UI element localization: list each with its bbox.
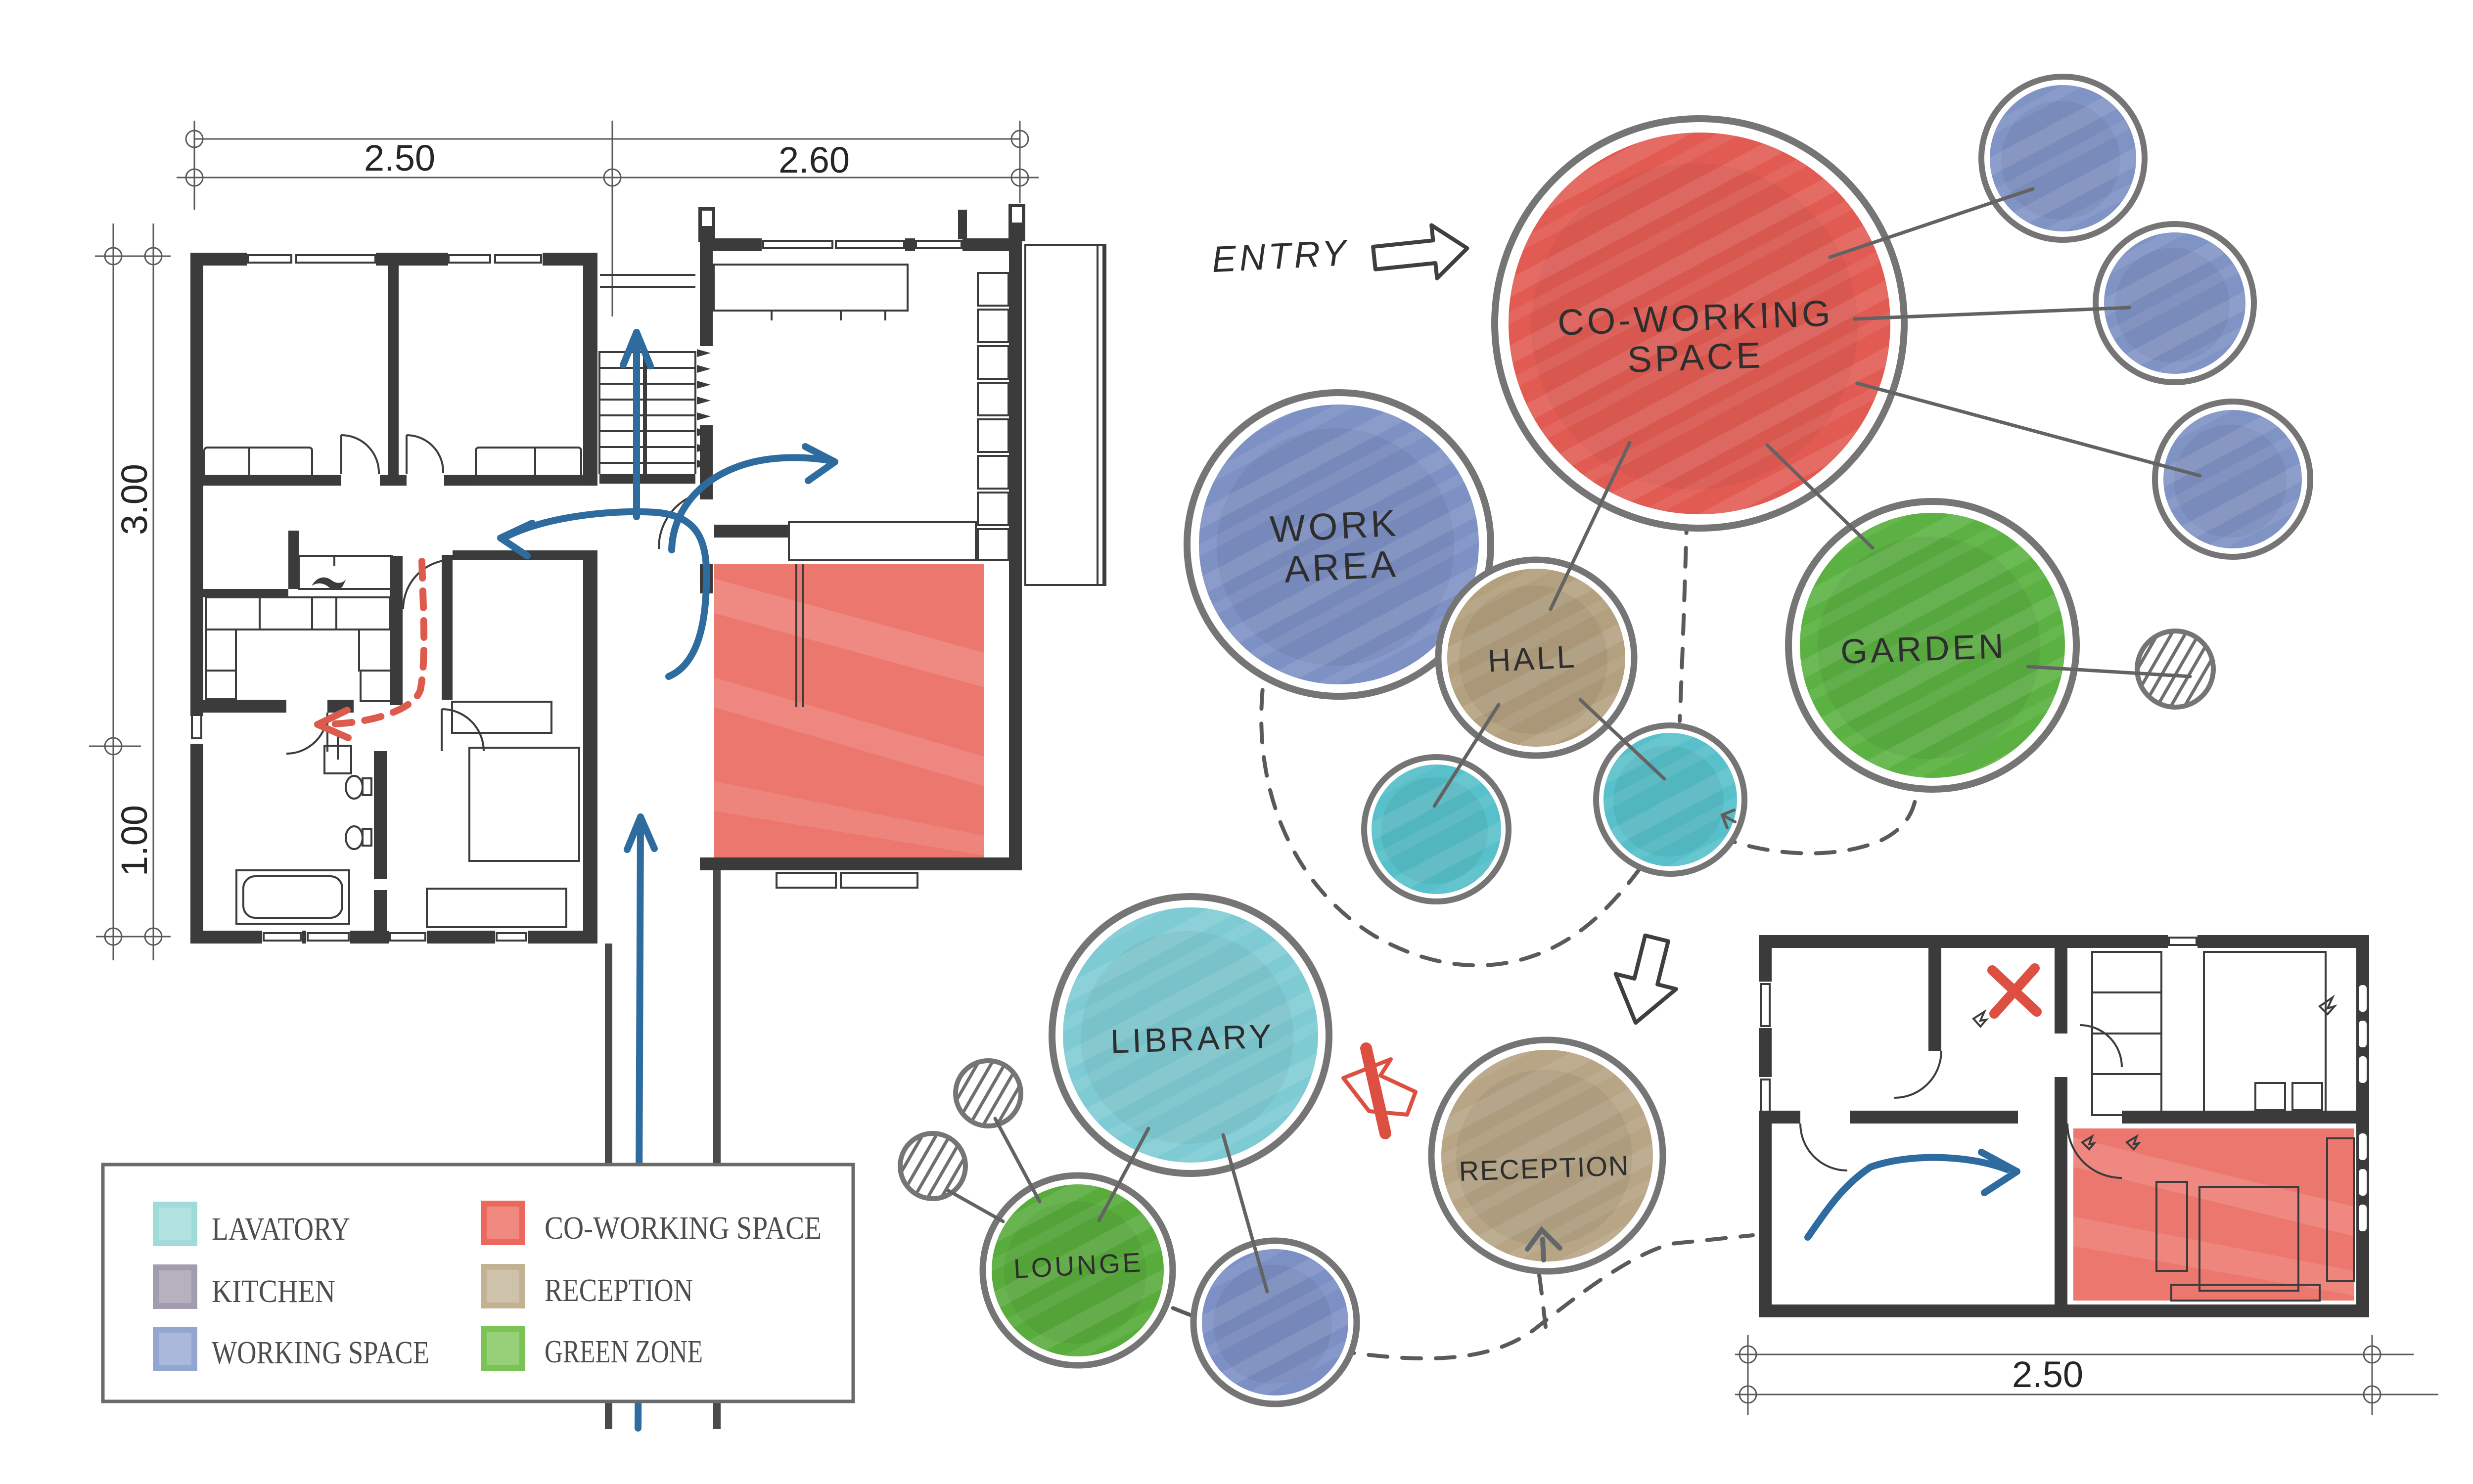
svg-text:GREEN ZONE: GREEN ZONE [545, 1334, 703, 1370]
svg-text:CO-WORKING SPACE: CO-WORKING SPACE [545, 1210, 822, 1246]
svg-text:GARDEN: GARDEN [1840, 627, 2007, 671]
svg-text:WORKING SPACE: WORKING SPACE [212, 1335, 429, 1371]
svg-text:1.00: 1.00 [114, 805, 155, 876]
svg-text:2.60: 2.60 [779, 139, 850, 180]
svg-text:ENTRY: ENTRY [1211, 232, 1350, 280]
svg-text:LIBRARY: LIBRARY [1110, 1017, 1275, 1061]
svg-text:RECEPTION: RECEPTION [1459, 1150, 1630, 1187]
svg-text:3.00: 3.00 [114, 464, 155, 535]
svg-text:2.50: 2.50 [2012, 1354, 2083, 1395]
svg-text:2.50: 2.50 [364, 137, 435, 179]
svg-text:HALL: HALL [1487, 638, 1578, 678]
svg-text:LAVATORY: LAVATORY [212, 1211, 350, 1247]
svg-text:RECEPTION: RECEPTION [545, 1272, 693, 1308]
svg-text:SPACE: SPACE [1627, 334, 1764, 380]
svg-text:KITCHEN: KITCHEN [212, 1273, 335, 1309]
svg-text:AREA: AREA [1283, 543, 1399, 591]
